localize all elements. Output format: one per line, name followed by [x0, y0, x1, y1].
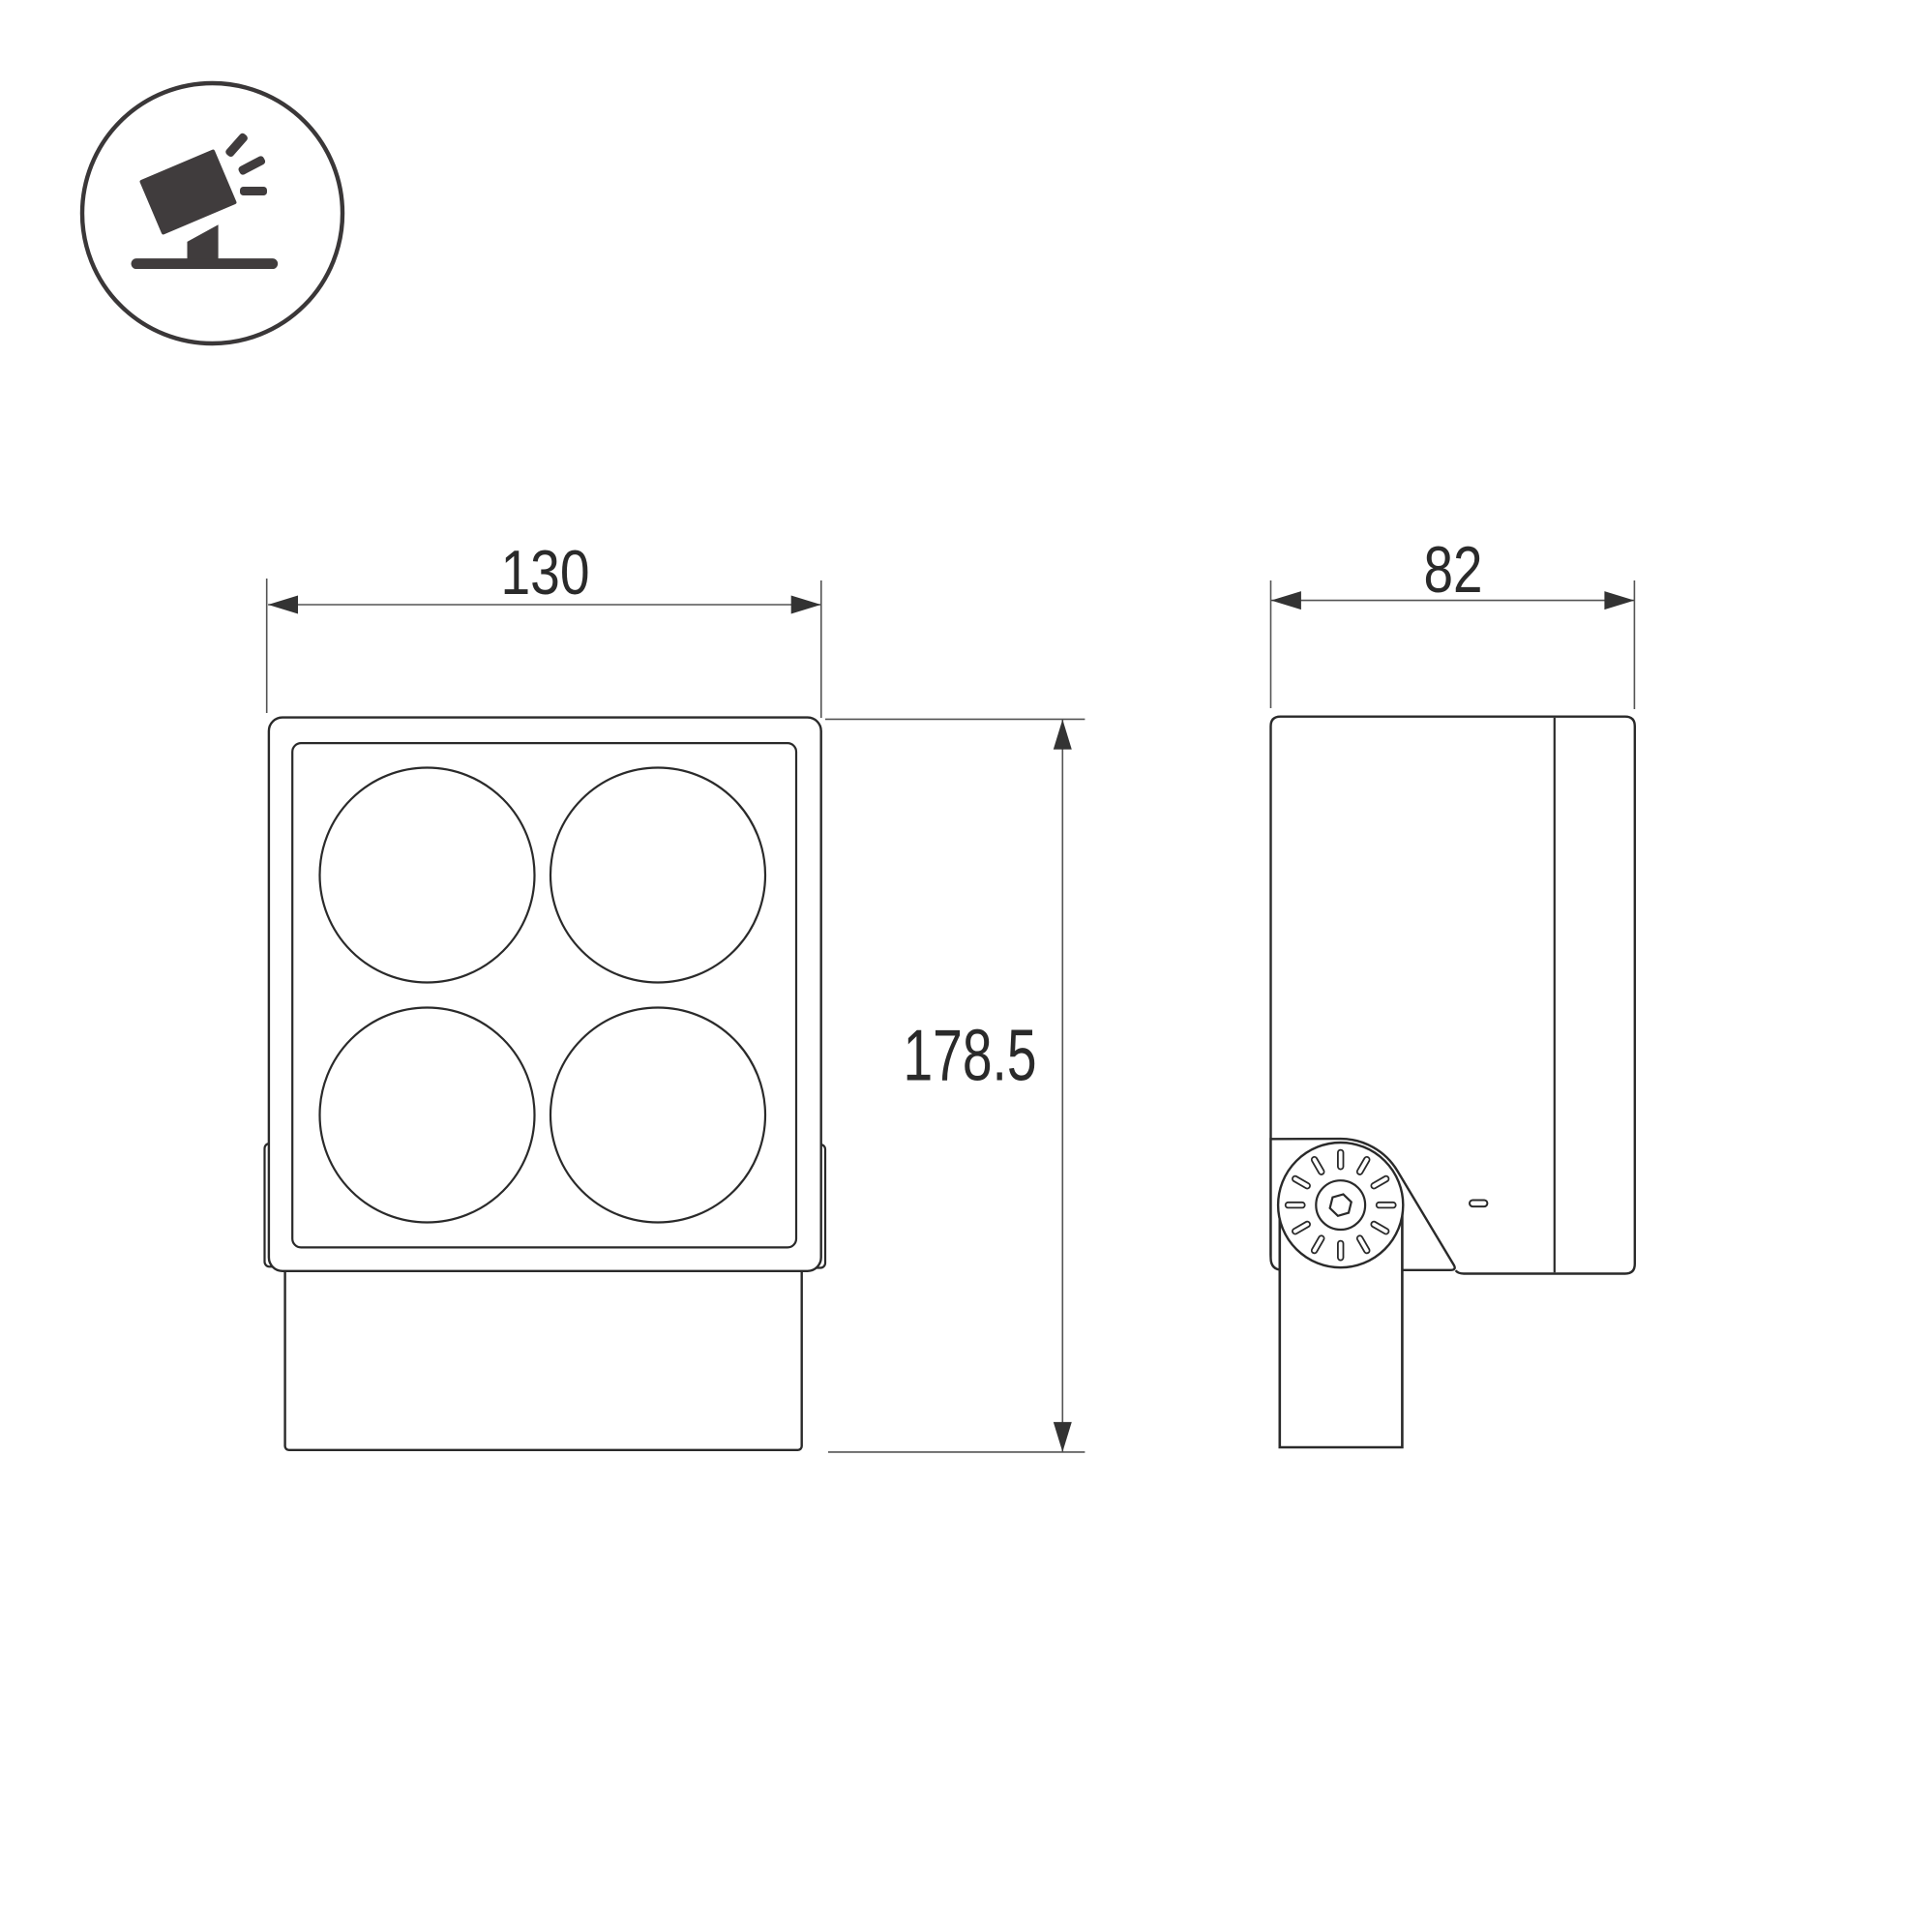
- svg-text:178.5: 178.5: [904, 1014, 1037, 1095]
- svg-text:130: 130: [501, 538, 590, 608]
- svg-text:82: 82: [1424, 533, 1483, 607]
